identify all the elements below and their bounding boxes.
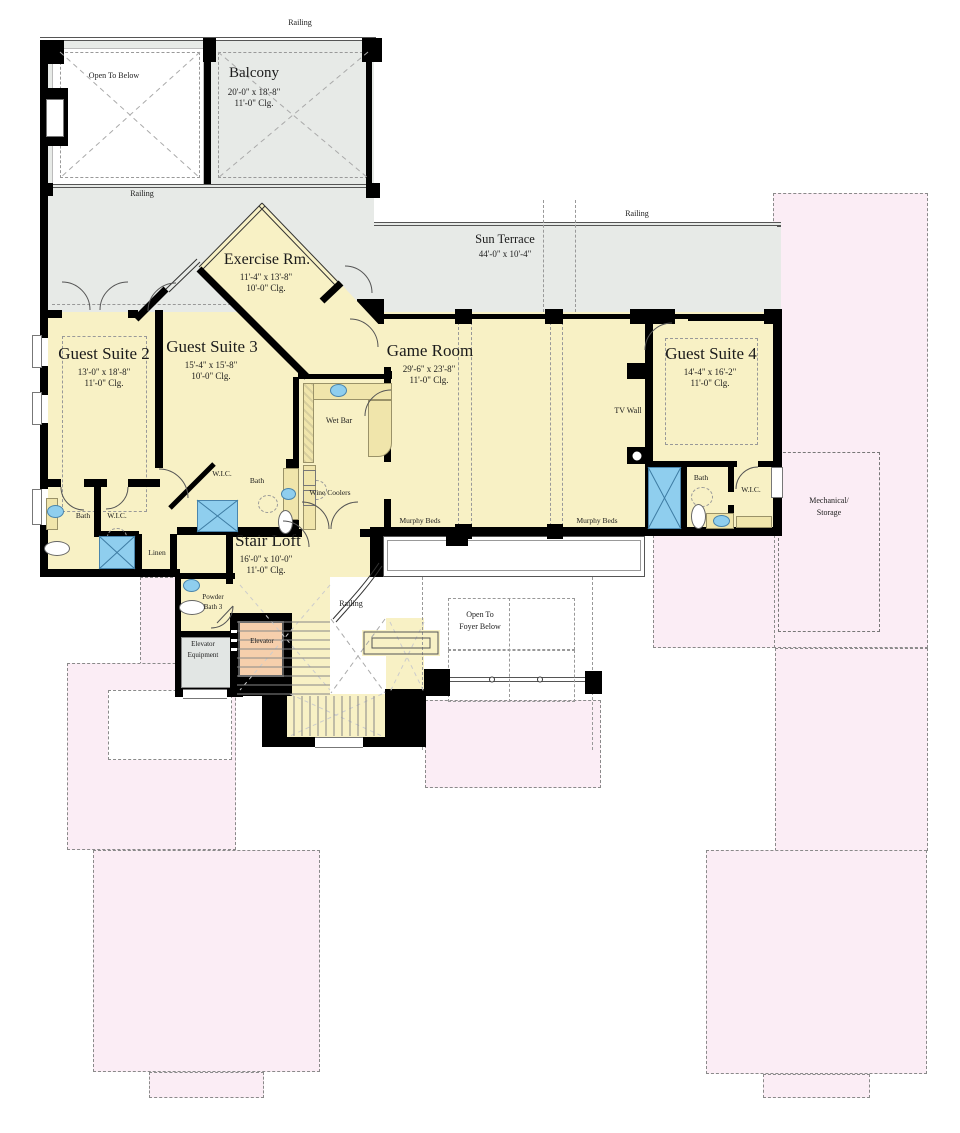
bath-label-gs3: Bath — [250, 477, 264, 485]
open-to-foyer-label-2: Foyer Below — [459, 623, 501, 631]
wic-label-gs4: W.I.C. — [741, 486, 761, 494]
railing-label-left: Railing — [130, 190, 154, 198]
powder-bath-label-2: Bath 3 — [204, 604, 222, 611]
wet-bar-label: Wet Bar — [326, 417, 352, 425]
railing-label-top: Railing — [288, 19, 312, 27]
bath-label-gs4: Bath — [694, 474, 708, 482]
room-dims-balcony: 20'-0" x 18'-8" — [228, 88, 281, 97]
room-title-stair-loft: Stair Loft — [235, 532, 301, 550]
murphy-beds-label-1: Murphy Beds — [399, 517, 440, 525]
room-title-guest-suite-2: Guest Suite 2 — [58, 345, 150, 363]
room-title-exercise: Exercise Rm. — [224, 252, 310, 269]
room-clg-stair-loft: 11'-0" Clg. — [247, 566, 286, 575]
railing-label-stair: Railing — [339, 600, 363, 608]
tv-wall-label: TV Wall — [614, 407, 641, 415]
powder-bath-label-1: Powder — [202, 594, 223, 601]
open-to-foyer-label-1: Open To — [466, 611, 494, 619]
wine-coolers-label: Wine Coolers — [309, 489, 350, 497]
room-dims-stair-loft: 16'-0" x 10'-0" — [240, 555, 293, 564]
room-clg-balcony: 11'-0" Clg. — [235, 99, 274, 108]
railing-label-terrace: Railing — [625, 210, 649, 218]
wic-label-gs3: W.I.C. — [212, 470, 232, 478]
room-clg-game-room: 11'-0" Clg. — [410, 376, 449, 385]
room-dims-exercise: 11'-4" x 13'-8" — [240, 273, 292, 282]
bath-label-gs2: Bath — [76, 512, 90, 520]
room-dims-guest-suite-2: 13'-0" x 18'-8" — [78, 368, 131, 377]
room-title-game-room: Game Room — [387, 342, 473, 360]
murphy-beds-label-2: Murphy Beds — [576, 517, 617, 525]
room-dims-game-room: 29'-6" x 23'-8" — [403, 365, 456, 374]
plan-labels: Railing Railing Railing Railing Open To … — [0, 0, 960, 1133]
mechanical-storage-label-1: Mechanical/ — [809, 497, 849, 505]
wic-label-gs2: W.I.C. — [107, 512, 127, 520]
room-clg-guest-suite-3: 10'-0" Clg. — [191, 372, 230, 381]
room-title-sun-terrace: Sun Terrace — [475, 233, 535, 246]
room-clg-guest-suite-2: 11'-0" Clg. — [85, 379, 124, 388]
room-title-guest-suite-4: Guest Suite 4 — [665, 345, 757, 363]
mechanical-storage-label-2: Storage — [817, 509, 841, 517]
room-dims-guest-suite-4: 14'-4" x 16'-2" — [684, 368, 737, 377]
room-title-guest-suite-3: Guest Suite 3 — [166, 338, 258, 356]
room-title-balcony: Balcony — [229, 66, 279, 82]
elevator-equipment-label-2: Equipment — [188, 652, 219, 659]
linen-label: Linen — [148, 549, 166, 557]
floor-plan-canvas: Railing Railing Railing Railing Open To … — [0, 0, 960, 1133]
room-dims-guest-suite-3: 15'-4" x 15'-8" — [185, 361, 238, 370]
room-clg-guest-suite-4: 11'-0" Clg. — [691, 379, 730, 388]
elevator-label: Elevator — [250, 638, 274, 645]
room-clg-exercise: 10'-0" Clg. — [246, 284, 285, 293]
room-dims-sun-terrace: 44'-0" x 10'-4" — [479, 250, 532, 259]
elevator-equipment-label-1: Elevator — [191, 641, 215, 648]
open-to-below-label: Open To Below — [89, 72, 139, 80]
